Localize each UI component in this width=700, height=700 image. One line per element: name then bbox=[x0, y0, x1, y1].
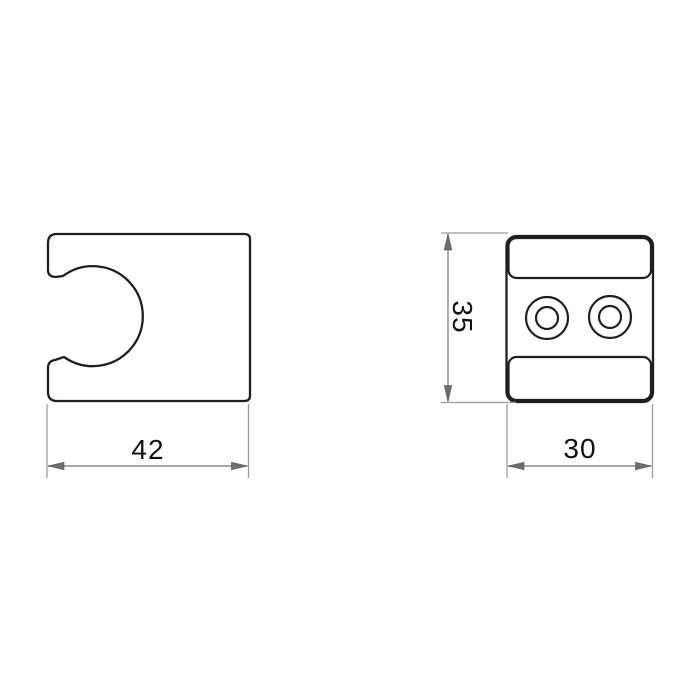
arrowhead-right-icon bbox=[232, 462, 248, 470]
dimension-side-width: 30 bbox=[507, 404, 653, 478]
dimension-label-side-width: 30 bbox=[563, 433, 596, 464]
right-screw-hole-outer bbox=[589, 296, 631, 338]
dimension-side-height: 35 bbox=[441, 233, 516, 403]
dimension-label-side-height: 35 bbox=[447, 300, 478, 333]
left-screw-hole-inner bbox=[536, 307, 558, 329]
arrowhead-right-icon bbox=[636, 462, 652, 470]
dimension-label-front-width: 42 bbox=[131, 434, 164, 465]
dimension-front-width: 42 bbox=[47, 404, 249, 478]
right-screw-hole-inner bbox=[599, 306, 621, 328]
arrowhead-left-icon bbox=[48, 462, 64, 470]
side-view-bottom-cap bbox=[509, 357, 652, 400]
left-screw-hole-outer bbox=[526, 297, 568, 339]
arrowhead-left-icon bbox=[508, 462, 524, 470]
front-view-outline-with-clip-cutout bbox=[48, 234, 250, 401]
technical-drawing-canvas: 42 35 30 bbox=[0, 0, 700, 700]
side-view bbox=[507, 236, 654, 402]
front-view bbox=[48, 234, 250, 401]
arrowhead-down-icon bbox=[444, 386, 452, 402]
drawing-svg: 42 35 30 bbox=[0, 0, 700, 700]
arrowhead-up-icon bbox=[444, 234, 452, 250]
side-view-top-cap bbox=[509, 238, 652, 278]
